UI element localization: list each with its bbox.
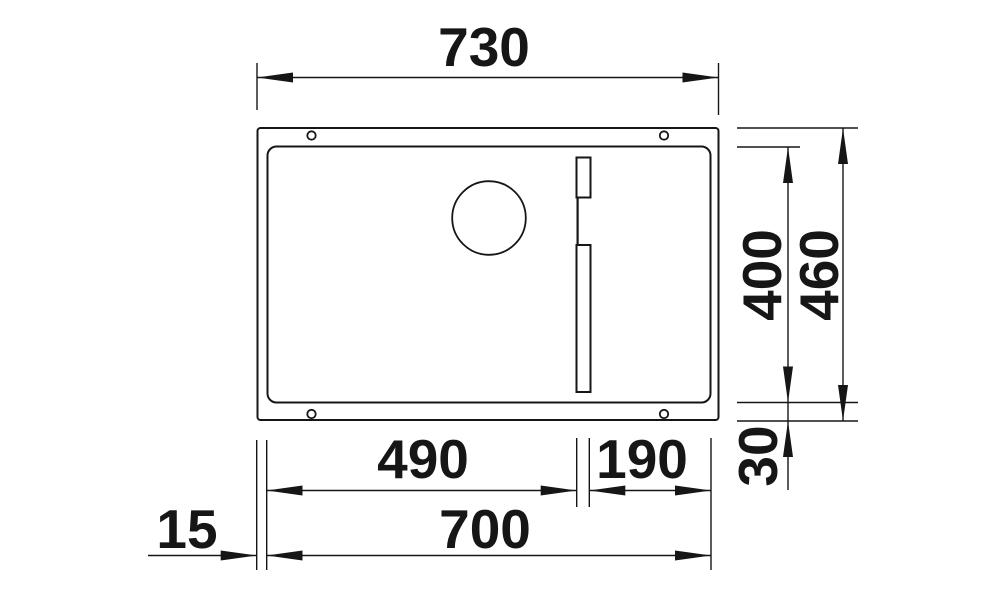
dimension-labels-group: 730 400 460 30 490 190 15 700 [156, 16, 850, 560]
label-bowl-depth: 400 [731, 229, 793, 321]
label-bowl-section-right: 190 [596, 428, 688, 490]
mounting-hole-bottom-left [307, 410, 315, 418]
accessory-rail-upper-segment [577, 158, 591, 198]
sink-dimension-drawing: 730 400 460 30 490 190 15 700 [0, 0, 1000, 592]
label-rim-offset-left: 15 [156, 498, 217, 560]
label-bowl-width: 700 [439, 498, 531, 560]
sink-bowl [268, 147, 711, 403]
label-overall-width: 730 [438, 16, 530, 78]
accessory-rail-lower-segment [577, 245, 591, 392]
mounting-hole-bottom-right [660, 410, 668, 418]
drain-hole [452, 181, 526, 255]
technical-drawing-canvas: 730 400 460 30 490 190 15 700 [0, 0, 1000, 592]
sink-outer-rim [258, 128, 719, 420]
mounting-hole-top-right [660, 131, 668, 139]
sink-outline-group [258, 128, 719, 420]
mounting-hole-top-left [307, 131, 315, 139]
label-bowl-section-left: 490 [377, 428, 469, 490]
label-rim-offset-bottom: 30 [727, 425, 789, 486]
label-overall-depth: 460 [788, 229, 850, 321]
